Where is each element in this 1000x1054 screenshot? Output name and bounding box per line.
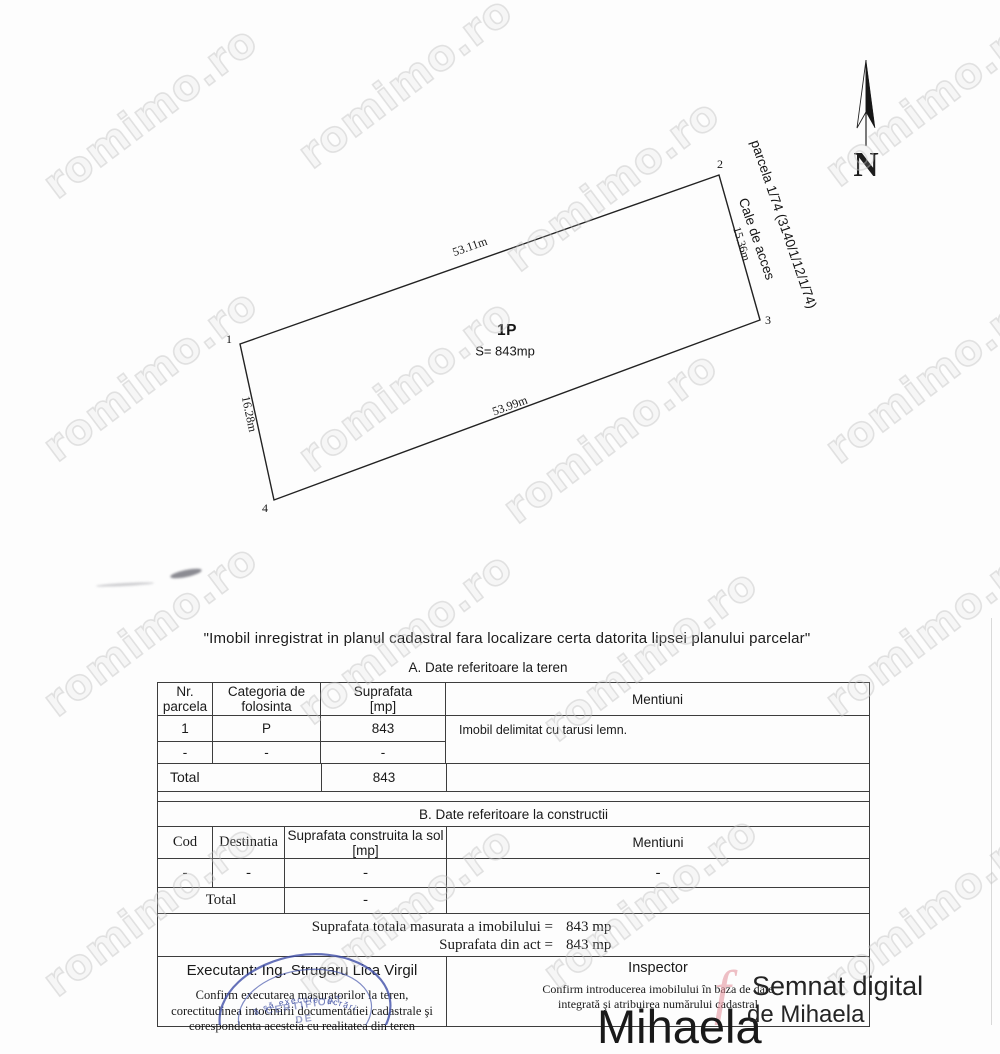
cell-categoria-row1: P <box>213 716 320 742</box>
table-b-header-row: Cod Destinatia Suprafata construita la s… <box>158 826 869 858</box>
header-text: Suprafata construita la sol <box>287 828 443 843</box>
vertex-label-4: 4 <box>262 501 268 516</box>
dimension-top-label: 53.11m <box>451 234 490 260</box>
scan-edge-line <box>991 618 992 1025</box>
executant-note-line2: corectitudinea intocmirii documentatiei … <box>171 1004 433 1020</box>
spacer-row <box>158 791 869 801</box>
total-mentiuni-b <box>446 888 869 913</box>
signature-line1: Semnat digital <box>752 971 923 1002</box>
col-header-cod: Cod <box>158 827 212 858</box>
vertex-label-3: 3 <box>765 313 771 328</box>
scan-smudge <box>170 567 203 581</box>
col-header-suprafata-sol: Suprafata construita la sol [mp] <box>284 827 446 858</box>
north-label: N <box>853 145 878 184</box>
vertex-label-1: 1 <box>226 332 232 347</box>
header-text: Suprafata <box>354 684 413 699</box>
cell-cod: - <box>158 859 212 887</box>
north-arrow-icon: N <box>853 60 878 184</box>
measurements-row: Suprafata totala masurata a imobilului =… <box>158 913 869 956</box>
watermark: romimo.ro <box>493 341 726 534</box>
signature-big-name: Mihaela <box>597 999 762 1054</box>
col-header-nr-parcela: Nr. parcela <box>158 683 212 715</box>
total-suprafata-a: 843 <box>321 764 446 791</box>
cell-suprafata-row1: 843 <box>321 716 445 742</box>
executant-cell: Executant: Ing. Strugaru Lica Virgil Con… <box>158 957 446 1026</box>
act-area-label: Suprafata din act = <box>158 937 553 954</box>
parcel-area: S= 843mp <box>475 344 535 359</box>
watermark: romimo.ro <box>495 89 728 282</box>
cell-destinatia: - <box>212 859 284 887</box>
total-label-a: Total <box>158 764 321 791</box>
watermark: romimo.ro <box>288 289 521 482</box>
header-text: [mp] <box>370 699 396 714</box>
dimension-bottom-label: 53.99m <box>490 393 529 420</box>
table-a-header-row: Nr. parcela Categoria de folosinta Supra… <box>158 683 869 715</box>
col-nr: 1 - <box>158 716 212 763</box>
vertex-label-2: 2 <box>717 157 723 172</box>
col-categoria: P - <box>212 716 320 763</box>
parcel-number: 1P <box>497 322 517 340</box>
watermark: romimo.ro <box>288 0 521 178</box>
cell-mentiuni-a: Imobil delimitat cu tarusi lemn. <box>445 716 869 763</box>
watermark: romimo.ro <box>33 279 266 472</box>
executant-note-line1: Confirm executarea masuratorilor la tere… <box>196 988 409 1004</box>
header-text: Categoria de <box>228 684 305 699</box>
scan-smudge <box>96 581 154 587</box>
cell-nr-row1: 1 <box>158 716 212 742</box>
col-header-mentiuni-b: Mentiuni <box>446 827 869 858</box>
col-header-mentiuni: Mentiuni <box>445 683 869 715</box>
executant-name: Executant: Ing. Strugaru Lica Virgil <box>187 963 418 978</box>
section-b-heading: B. Date referitoare la constructii <box>158 802 869 826</box>
header-text: [mp] <box>352 843 378 858</box>
section-a-heading: A. Date referitoare la teren <box>88 660 888 675</box>
total-label-b: Total <box>158 888 284 913</box>
table-b-total-row: Total - <box>158 887 869 913</box>
table-a-body: 1 - P - 843 - Imobil delimitat cu tarusi… <box>158 715 869 763</box>
header-text: Nr. <box>176 684 193 699</box>
measured-area-label: Suprafata totala masurata a imobilului = <box>158 919 553 936</box>
cell-categoria-row2: - <box>213 742 320 763</box>
cell-suprafata-row2: - <box>321 742 445 763</box>
cell-mentiuni-b: - <box>446 859 869 887</box>
measured-area-value: 843 mp <box>566 919 611 936</box>
dimension-left-label: 16.28m <box>238 395 260 434</box>
total-suprafata-b: - <box>284 888 446 913</box>
cadastral-plan-drawing: N <box>0 0 1000 620</box>
header-text: parcela <box>163 699 207 714</box>
col-header-suprafata: Suprafata [mp] <box>320 683 445 715</box>
header-text: Mentiuni <box>632 692 683 707</box>
col-suprafata: 843 - <box>320 716 445 763</box>
watermark: romimo.ro <box>815 4 1000 197</box>
document-title: "Imobil inregistrat in planul cadastral … <box>107 630 907 647</box>
watermark: romimo.ro <box>815 281 1000 474</box>
total-mentiuni-a <box>446 764 869 791</box>
cell-suprafata-sol: - <box>284 859 446 887</box>
header-text: folosinta <box>241 699 291 714</box>
act-area-value: 843 mp <box>566 937 611 954</box>
table-a-total-row: Total 843 <box>158 763 869 791</box>
table-b-title-row: B. Date referitoare la constructii <box>158 801 869 826</box>
col-header-destinatia: Destinatia <box>212 827 284 858</box>
cell-nr-row2: - <box>158 742 212 763</box>
table-b-body-row: - - - - <box>158 858 869 887</box>
executant-note-line3: corespondenta acesteia cu realitatea din… <box>189 1019 415 1035</box>
col-header-categoria: Categoria de folosinta <box>212 683 320 715</box>
watermark: romimo.ro <box>33 16 266 209</box>
